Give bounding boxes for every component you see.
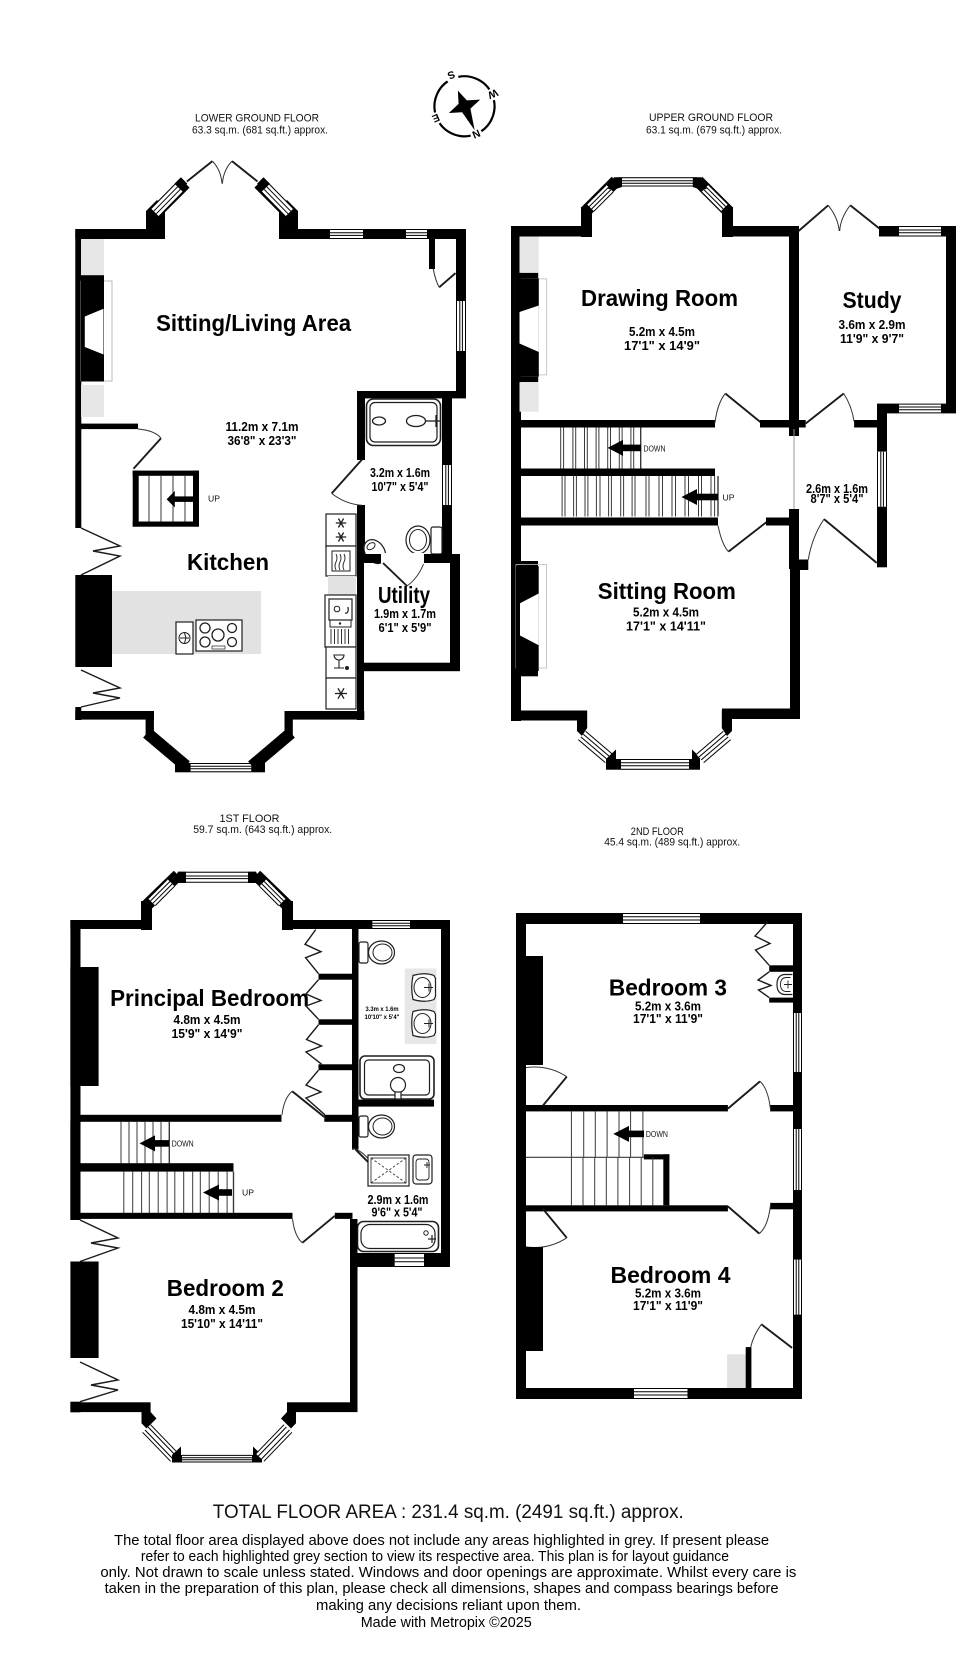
svg-text:Drawing Room: Drawing Room <box>581 285 738 311</box>
svg-text:15'10" x 14'11": 15'10" x 14'11" <box>181 1317 263 1331</box>
svg-text:17'1" x 14'9": 17'1" x 14'9" <box>624 339 700 353</box>
svg-text:refer to each highlighted grey: refer to each highlighted grey section t… <box>141 1548 729 1565</box>
svg-text:3.3m x 1.6m: 3.3m x 1.6m <box>366 1006 399 1013</box>
svg-text:UP: UP <box>242 1189 254 1198</box>
svg-text:17'1" x 11'9": 17'1" x 11'9" <box>633 1012 703 1026</box>
svg-text:5.2m x 4.5m: 5.2m x 4.5m <box>633 606 699 620</box>
svg-text:The total floor area displayed: The total floor area displayed above doe… <box>114 1532 769 1549</box>
svg-text:Bedroom 4: Bedroom 4 <box>611 1262 731 1288</box>
svg-text:4.8m x 4.5m: 4.8m x 4.5m <box>189 1303 256 1317</box>
svg-text:Kitchen: Kitchen <box>187 549 269 575</box>
svg-text:10'10" x 5'4": 10'10" x 5'4" <box>365 1014 400 1021</box>
svg-text:making any decisions reliant u: making any decisions reliant upon them. <box>316 1597 581 1614</box>
svg-text:45.4 sq.m. (489 sq.ft.) approx: 45.4 sq.m. (489 sq.ft.) approx. <box>604 837 740 849</box>
svg-text:6'1" x 5'9": 6'1" x 5'9" <box>379 621 432 635</box>
svg-text:1.9m x 1.7m: 1.9m x 1.7m <box>374 607 436 621</box>
svg-text:17'1" x 14'11": 17'1" x 14'11" <box>626 620 706 634</box>
svg-text:Bedroom 3: Bedroom 3 <box>609 975 727 1001</box>
svg-text:LOWER GROUND FLOOR: LOWER GROUND FLOOR <box>195 113 319 125</box>
svg-text:DOWN: DOWN <box>646 1130 668 1139</box>
svg-text:8'7" x 5'4": 8'7" x 5'4" <box>811 492 864 506</box>
svg-text:DOWN: DOWN <box>172 1140 194 1149</box>
svg-text:9'6" x 5'4": 9'6" x 5'4" <box>372 1206 423 1220</box>
svg-text:UPPER GROUND FLOOR: UPPER GROUND FLOOR <box>649 112 773 124</box>
svg-text:15'9" x 14'9": 15'9" x 14'9" <box>172 1027 243 1041</box>
svg-text:59.7 sq.m. (643 sq.ft.) approx: 59.7 sq.m. (643 sq.ft.) approx. <box>193 824 332 836</box>
svg-text:11'9" x 9'7": 11'9" x 9'7" <box>840 332 904 346</box>
svg-text:UP: UP <box>208 495 220 504</box>
svg-text:Study: Study <box>843 287 902 313</box>
svg-text:TOTAL FLOOR AREA : 231.4 sq.m.: TOTAL FLOOR AREA : 231.4 sq.m. (2491 sq.… <box>213 1502 684 1523</box>
svg-text:UP: UP <box>723 494 735 503</box>
svg-text:11.2m x 7.1m: 11.2m x 7.1m <box>226 420 299 434</box>
svg-text:10'7" x 5'4": 10'7" x 5'4" <box>372 480 429 494</box>
svg-text:63.1 sq.m. (679 sq.ft.) approx: 63.1 sq.m. (679 sq.ft.) approx. <box>646 125 782 137</box>
svg-text:taken in the preparation of th: taken in the preparation of this plan, p… <box>105 1580 779 1597</box>
svg-text:Principal Bedroom: Principal Bedroom <box>110 985 309 1011</box>
svg-text:Bedroom 2: Bedroom 2 <box>167 1275 284 1301</box>
svg-text:3.2m x 1.6m: 3.2m x 1.6m <box>370 466 430 480</box>
svg-text:17'1" x 11'9": 17'1" x 11'9" <box>633 1299 703 1313</box>
svg-text:4.8m x 4.5m: 4.8m x 4.5m <box>174 1013 241 1027</box>
svg-text:Sitting/Living Area: Sitting/Living Area <box>156 310 351 336</box>
svg-text:DOWN: DOWN <box>644 444 666 453</box>
svg-text:Made with Metropix ©2025: Made with Metropix ©2025 <box>361 1614 532 1631</box>
svg-text:36'8" x 23'3": 36'8" x 23'3" <box>228 434 297 448</box>
svg-text:Utility: Utility <box>378 582 430 608</box>
svg-text:only. Not drawn to scale unles: only. Not drawn to scale unless stated. … <box>100 1564 796 1581</box>
svg-text:63.3 sq.m. (681 sq.ft.) approx: 63.3 sq.m. (681 sq.ft.) approx. <box>192 125 328 137</box>
svg-text:5.2m x 4.5m: 5.2m x 4.5m <box>629 325 695 339</box>
svg-text:Sitting Room: Sitting Room <box>598 578 736 604</box>
svg-text:3.6m x 2.9m: 3.6m x 2.9m <box>839 318 906 332</box>
